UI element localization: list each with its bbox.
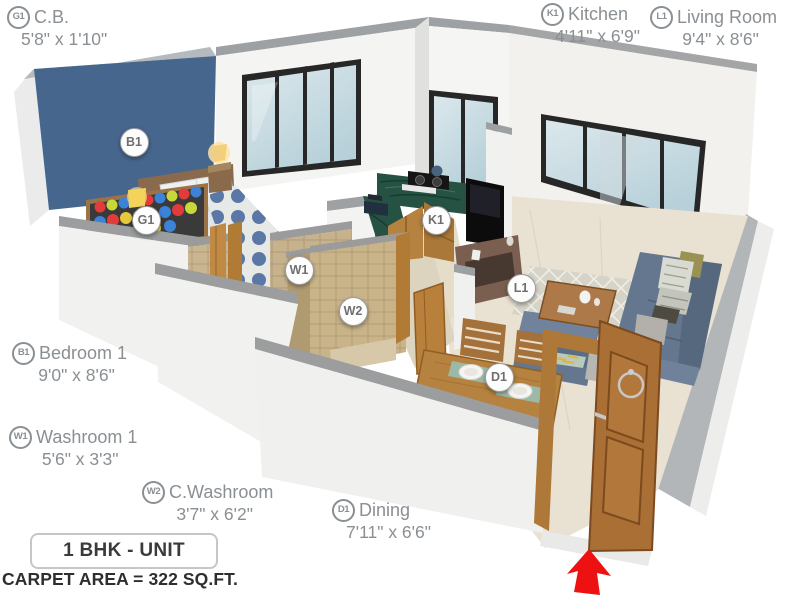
label-cwashroom: W2C.Washroom 3'7" x 6'2" — [142, 481, 273, 525]
washroom-door — [396, 232, 410, 344]
bedroom-window — [242, 59, 361, 177]
washroom1-name: Washroom 1 — [36, 427, 137, 447]
carpet-area-text: CARPET AREA = 322 SQ.FT. — [2, 569, 238, 590]
cwashroom-badge: W2 — [142, 481, 165, 504]
kitchen-dims: 4'11" x 6'9" — [541, 27, 640, 47]
label-cb: G1C.B. 5'8" x 1'10" — [7, 6, 107, 50]
label-living-room: L1Living Room 9'4" x 8'6" — [650, 6, 777, 50]
table-lamp — [212, 144, 227, 162]
marker-cb: G1 — [132, 206, 161, 235]
marker-washroom1: W1 — [285, 256, 314, 285]
kitchen-name: Kitchen — [568, 4, 628, 24]
unit-title-box: 1 BHK - UNIT — [30, 533, 218, 569]
nightstand — [208, 142, 232, 193]
label-washroom1: W1Washroom 1 5'6" x 3'3" — [9, 426, 137, 470]
entrance-door — [589, 321, 661, 551]
kitchen-badge: K1 — [541, 3, 564, 26]
cb-badge: G1 — [7, 6, 30, 29]
label-kitchen: K1Kitchen 4'11" x 6'9" — [541, 3, 640, 47]
dining-name: Dining — [359, 500, 410, 520]
cwashroom-dims: 3'7" x 6'2" — [142, 505, 273, 525]
living-dims: 9'4" x 8'6" — [650, 30, 777, 50]
kettle — [432, 166, 443, 177]
vase — [580, 291, 591, 304]
label-dining: D1Dining 7'11" x 6'6" — [332, 499, 431, 543]
bedroom-dims: 9'0" x 8'6" — [12, 366, 127, 386]
cb-dims: 5'8" x 1'10" — [7, 30, 107, 50]
decor-vase — [507, 236, 514, 246]
living-name: Living Room — [677, 7, 777, 27]
cb-name: C.B. — [34, 7, 69, 27]
marker-kitchen: K1 — [422, 206, 451, 235]
washroom1-badge: W1 — [9, 426, 32, 449]
marker-living: L1 — [507, 274, 536, 303]
washroom1-dims: 5'6" x 3'3" — [9, 450, 137, 470]
dining-badge: D1 — [332, 499, 355, 522]
bedroom-badge: B1 — [12, 342, 35, 365]
shelf-lamp — [128, 188, 146, 208]
marker-washroom2: W2 — [339, 297, 368, 326]
marker-bedroom: B1 — [120, 128, 149, 157]
bedroom-name: Bedroom 1 — [39, 343, 127, 363]
label-bedroom: B1Bedroom 1 9'0" x 8'6" — [12, 342, 127, 386]
dining-dims: 7'11" x 6'6" — [332, 523, 431, 543]
floorplan-canvas: B1 G1 W1 W2 K1 L1 D1 G1C.B. 5'8" x 1'10"… — [0, 0, 800, 600]
living-badge: L1 — [650, 6, 673, 29]
cwashroom-name: C.Washroom — [169, 482, 273, 502]
marker-dining: D1 — [485, 363, 514, 392]
